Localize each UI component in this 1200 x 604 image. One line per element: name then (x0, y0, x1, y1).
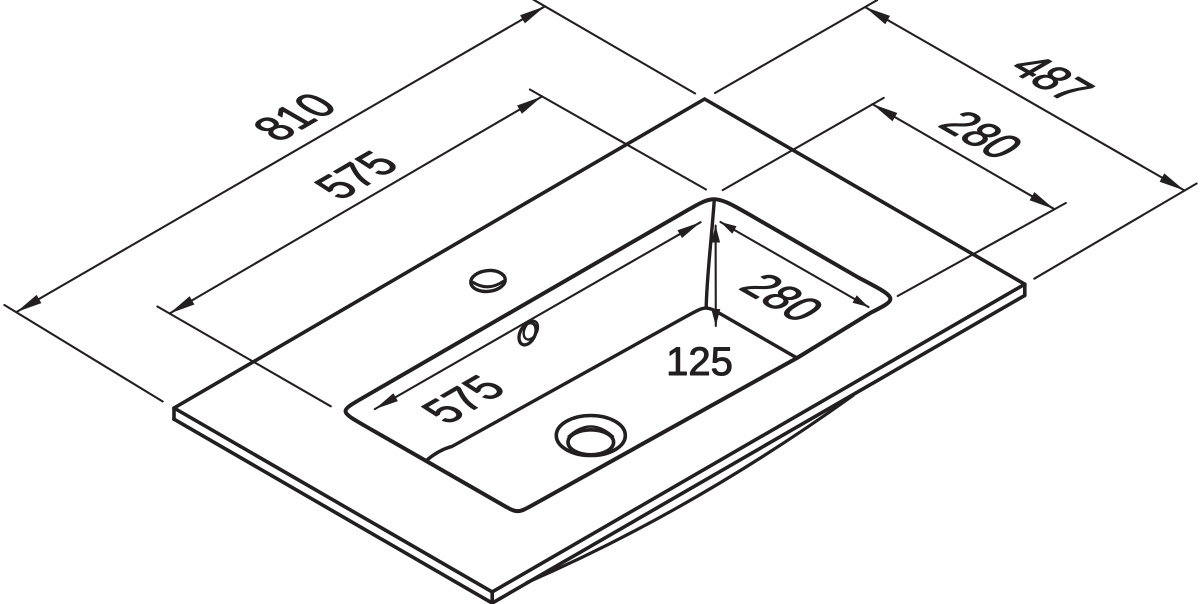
svg-text:575: 575 (302, 144, 410, 206)
svg-text:487: 487 (998, 47, 1106, 109)
svg-text:810: 810 (241, 86, 349, 148)
svg-text:125: 125 (666, 340, 733, 384)
svg-text:280: 280 (928, 104, 1036, 166)
